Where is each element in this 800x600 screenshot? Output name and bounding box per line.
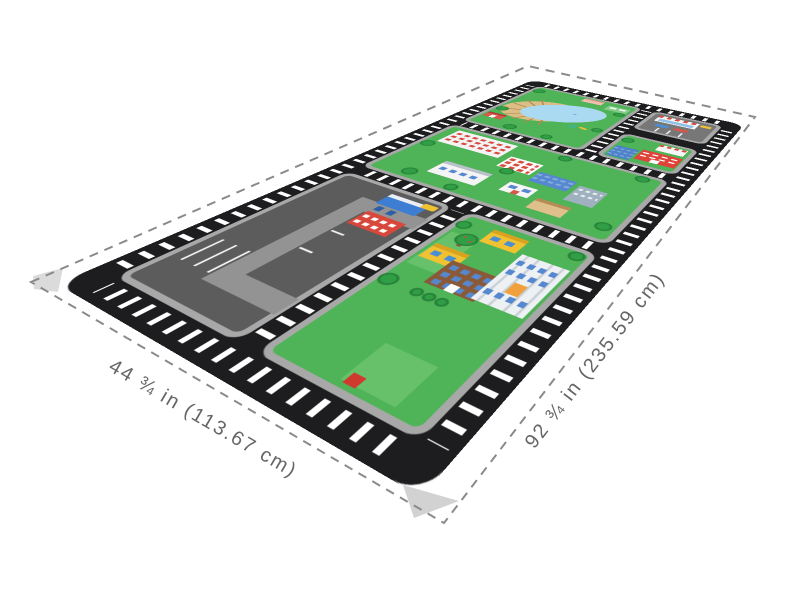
left-corner-shadow	[33, 268, 63, 292]
product-scene: 44 ¾ in (113.67 cm) 92 ¾ in (235.59 cm)	[0, 0, 800, 600]
